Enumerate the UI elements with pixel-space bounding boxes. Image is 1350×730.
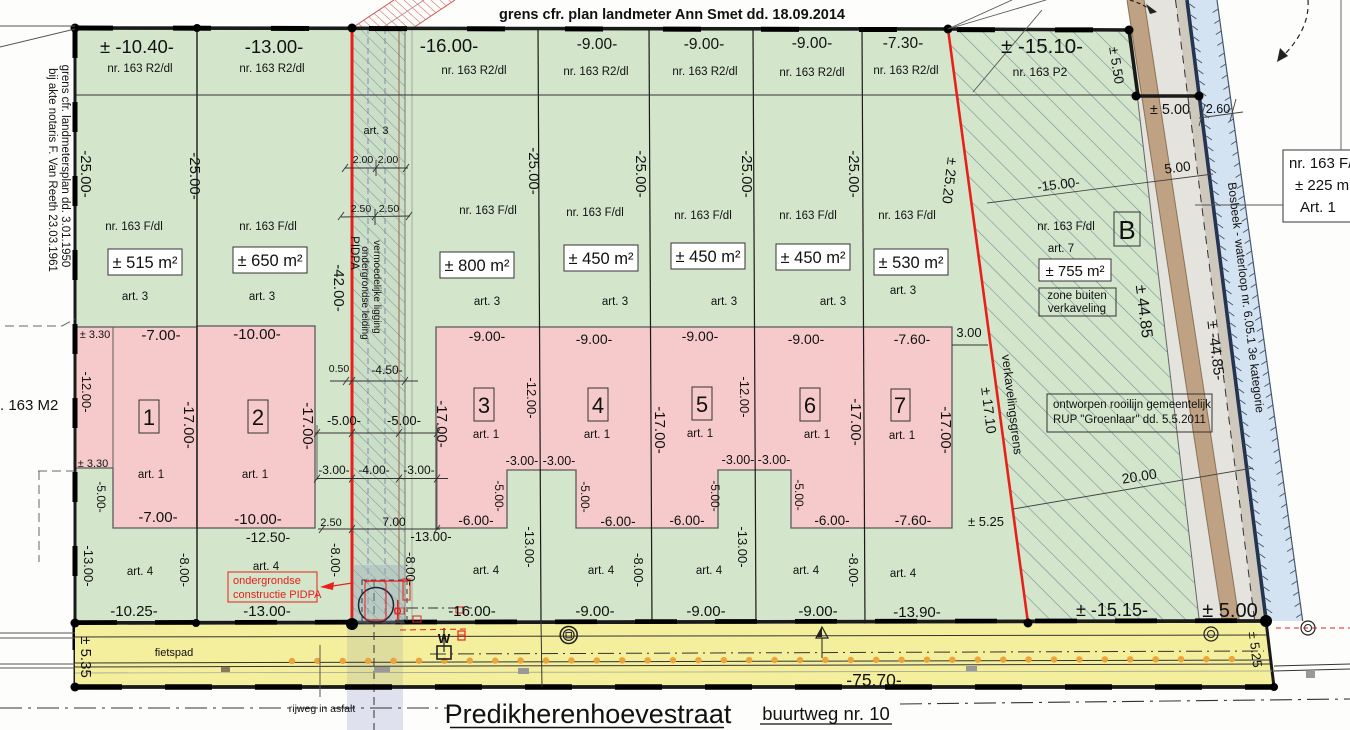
svg-text:6: 6 — [804, 393, 816, 418]
svg-text:-9.00-: -9.00- — [792, 35, 833, 52]
svg-text:. 163 M2: . 163 M2 — [0, 397, 58, 414]
svg-text:ontworpen rooilijn gemeentelij: ontworpen rooilijn gemeentelijk — [1053, 399, 1211, 411]
svg-text:± 530 m²: ± 530 m² — [879, 254, 944, 272]
svg-text:± 225 m: ± 225 m — [1295, 177, 1349, 194]
svg-text:± 515 m²: ± 515 m² — [113, 254, 178, 272]
svg-text:nr. 163 F/dl: nr. 163 F/dl — [566, 207, 624, 219]
svg-text:-8.00-: -8.00- — [631, 553, 646, 587]
svg-text:buurtweg nr. 10: buurtweg nr. 10 — [762, 703, 890, 724]
svg-text:-17.00-: -17.00- — [433, 400, 450, 448]
svg-text:7: 7 — [894, 393, 906, 418]
svg-text:art. 4: art. 4 — [127, 566, 154, 578]
svg-text:nr. 163 F/dl: nr. 163 F/dl — [459, 205, 517, 217]
svg-text:nr. 163 F/dl: nr. 163 F/dl — [779, 210, 837, 222]
svg-text:nr. 163 F/dl: nr. 163 F/dl — [674, 210, 732, 222]
svg-text:± 5.25: ± 5.25 — [968, 514, 1004, 529]
svg-text:-17.00-: -17.00- — [651, 406, 668, 454]
svg-text:-5.00-: -5.00- — [492, 480, 506, 511]
svg-text:5.00: 5.00 — [1163, 158, 1191, 176]
svg-text:± 650 m²: ± 650 m² — [238, 252, 303, 270]
svg-text:nr. 163 R2/dl: nr. 163 R2/dl — [873, 65, 938, 77]
svg-text:-13.00-: -13.00- — [410, 529, 451, 544]
svg-text:art. 4: art. 4 — [890, 568, 917, 580]
svg-text:-25.00-: -25.00- — [738, 150, 755, 198]
svg-text:± 450 m²: ± 450 m² — [781, 249, 846, 267]
svg-text:ondergrondse leiding: ondergrondse leiding — [359, 246, 370, 339]
svg-text:-13.90-: -13.90- — [893, 604, 941, 621]
svg-text:-8.00-: -8.00- — [403, 552, 418, 586]
svg-text:art. 3: art. 3 — [602, 296, 628, 308]
svg-text:-5.00-: -5.00- — [708, 480, 722, 511]
svg-text:RUP "Groenlaar" dd. 5.5.2011: RUP "Groenlaar" dd. 5.5.2011 — [1053, 414, 1206, 426]
svg-text:2.50: 2.50 — [379, 203, 400, 215]
svg-text:art. 3: art. 3 — [363, 125, 388, 137]
svg-text:-7.00-: -7.00- — [141, 327, 180, 344]
svg-text:art. 3: art. 3 — [820, 296, 846, 308]
svg-text:-42.00-: -42.00- — [330, 264, 347, 312]
svg-text:-17.00-: -17.00- — [299, 402, 316, 450]
svg-text:± -15.10-: ± -15.10- — [1001, 35, 1083, 58]
svg-text:nr. 163 F/dl: nr. 163 F/dl — [878, 210, 936, 222]
svg-text:-4.00-: -4.00- — [358, 463, 389, 477]
svg-text:± 5.35: ± 5.35 — [77, 636, 94, 678]
svg-text:-9.00-: -9.00- — [798, 603, 837, 620]
svg-text:-10.00-: -10.00- — [233, 326, 281, 343]
svg-text:-13.00-: -13.00- — [81, 545, 96, 586]
svg-text:-6.00-: -6.00- — [458, 513, 493, 528]
svg-text:nr. 163 P2: nr. 163 P2 — [1013, 65, 1068, 79]
svg-text:± 755 m²: ± 755 m² — [1045, 263, 1104, 280]
svg-text:3.00: 3.00 — [956, 325, 981, 340]
svg-text:-5.00-: -5.00- — [792, 479, 806, 510]
svg-text:2.00: 2.00 — [378, 154, 399, 166]
svg-text:-13.00-: -13.00- — [243, 603, 291, 620]
svg-text:2: 2 — [252, 405, 264, 430]
svg-text:-12.50-: -12.50- — [246, 529, 291, 545]
svg-text:± 5.00: ± 5.00 — [1150, 102, 1190, 118]
svg-text:art. 1: art. 1 — [804, 429, 830, 441]
svg-text:bij akte notaris F. Van Reeth: bij akte notaris F. Van Reeth 23.03.1961 — [46, 68, 58, 272]
svg-text:1: 1 — [143, 405, 155, 430]
svg-text:-9.00-: -9.00- — [682, 328, 719, 344]
svg-text:art. 4: art. 4 — [793, 565, 820, 577]
svg-text:± 800 m²: ± 800 m² — [445, 257, 510, 275]
svg-text:5: 5 — [696, 392, 708, 417]
svg-text:rijweg in asfalt: rijweg in asfalt — [289, 703, 356, 715]
svg-text:grens cfr. plan landmeter Ann: grens cfr. plan landmeter Ann Smet dd. 1… — [499, 7, 845, 23]
svg-text:Predikherenhoevestraat: Predikherenhoevestraat — [445, 699, 732, 729]
svg-text:verkaveling: verkaveling — [1048, 303, 1106, 315]
svg-text:-3.00-: -3.00- — [318, 463, 349, 477]
svg-text:nr. 163 R2/dl: nr. 163 R2/dl — [239, 63, 304, 75]
svg-text:art. 3: art. 3 — [474, 296, 500, 308]
svg-text:-9.00-: -9.00- — [788, 331, 825, 347]
svg-text:-17.00-: -17.00- — [937, 406, 954, 454]
svg-text:-4.50-: -4.50- — [371, 363, 402, 377]
svg-text:-16.00-: -16.00- — [420, 35, 479, 56]
svg-text:art. 1: art. 1 — [687, 428, 713, 440]
svg-text:art. 7: art. 7 — [1048, 243, 1074, 255]
svg-text:2.00: 2.00 — [353, 154, 374, 166]
svg-text:-9.00-: -9.00- — [684, 36, 725, 53]
svg-text:PIDPA: PIDPA — [348, 236, 360, 270]
svg-text:-7.30-: -7.30- — [883, 35, 924, 52]
svg-text:-17.00-: -17.00- — [180, 401, 197, 449]
svg-text:-13.00-: -13.00- — [735, 526, 750, 567]
svg-text:art. 1: art. 1 — [473, 429, 499, 441]
svg-text:-3.00-: -3.00- — [722, 453, 755, 467]
svg-text:zone buiten: zone buiten — [1047, 290, 1106, 302]
svg-text:-13.00-: -13.00- — [522, 526, 537, 567]
svg-text:-12.00-: -12.00- — [524, 377, 539, 418]
svg-text:art. 1: art. 1 — [889, 430, 915, 442]
svg-text:-12.00-: -12.00- — [79, 371, 94, 412]
svg-text:-9.00-: -9.00- — [686, 603, 725, 620]
svg-text:nr. 163 F/dl: nr. 163 F/dl — [239, 221, 297, 233]
svg-text:-5.00-: -5.00- — [578, 481, 592, 512]
svg-text:art. 4: art. 4 — [696, 565, 723, 577]
svg-text:vermoedelijke ligging: vermoedelijke ligging — [371, 240, 382, 333]
svg-text:-17.00-: -17.00- — [847, 398, 864, 446]
svg-text:-3.00-: -3.00- — [506, 454, 539, 468]
svg-text:Art. 1: Art. 1 — [1300, 199, 1336, 216]
svg-text:nr. 163 R2/dl: nr. 163 R2/dl — [563, 66, 628, 78]
svg-text:-8.00-: -8.00- — [846, 553, 861, 587]
svg-text:-9.00-: -9.00- — [576, 331, 613, 347]
svg-text:-5.00-: -5.00- — [387, 413, 421, 428]
svg-text:-6.00-: -6.00- — [600, 514, 635, 529]
svg-text:art. 3: art. 3 — [249, 291, 275, 303]
svg-text:art. 3: art. 3 — [711, 296, 737, 308]
svg-text:-12.00-: -12.00- — [737, 376, 752, 417]
svg-text:-25.00-: -25.00- — [77, 150, 94, 198]
svg-text:-25.00-: -25.00- — [845, 150, 862, 198]
svg-text:art. 3: art. 3 — [890, 285, 916, 297]
svg-text:constructie PIDPA: constructie PIDPA — [233, 589, 322, 601]
svg-text:art. 3: art. 3 — [122, 291, 148, 303]
svg-text:art. 1: art. 1 — [584, 429, 610, 441]
svg-text:nr. 163 R2/dl: nr. 163 R2/dl — [779, 67, 844, 79]
svg-text:-7.60-: -7.60- — [894, 331, 931, 347]
svg-text:nr. 163 F/d: nr. 163 F/d — [1289, 155, 1350, 172]
svg-text:-8.00-: -8.00- — [328, 543, 343, 577]
svg-text:± 5.00: ± 5.00 — [1202, 600, 1257, 622]
svg-text:± 450 m²: ± 450 m² — [676, 248, 741, 266]
svg-text:-75.70-: -75.70- — [846, 670, 902, 690]
svg-text:nr. 163 R2/dl: nr. 163 R2/dl — [107, 63, 172, 75]
svg-text:art. 4: art. 4 — [473, 565, 500, 577]
svg-text:-6.00-: -6.00- — [669, 513, 704, 528]
svg-text:nr. 163 F/dl: nr. 163 F/dl — [105, 221, 163, 233]
svg-text:B: B — [1118, 215, 1135, 245]
svg-text:art. 1: art. 1 — [242, 469, 268, 481]
svg-text:-9.00-: -9.00- — [577, 36, 618, 53]
svg-text:± -10.40-: ± -10.40- — [100, 36, 174, 57]
svg-text:fietspad: fietspad — [155, 647, 194, 659]
svg-text:-6.00-: -6.00- — [814, 513, 849, 528]
svg-text:-7.60-: -7.60- — [895, 512, 932, 528]
svg-text:4: 4 — [592, 393, 604, 418]
svg-text:nr. 163 R2/dl: nr. 163 R2/dl — [672, 66, 737, 78]
svg-text:-25.00-: -25.00- — [632, 150, 649, 198]
svg-text:-9.00-: -9.00- — [469, 328, 506, 344]
svg-text:-9.00-: -9.00- — [575, 603, 614, 620]
svg-text:-13.00-: -13.00- — [245, 36, 304, 57]
svg-text:nr. 163 F/dl: nr. 163 F/dl — [1037, 221, 1095, 233]
svg-text:-7.00-: -7.00- — [138, 509, 177, 526]
svg-text:grens cfr. landmetersplan dd.: grens cfr. landmetersplan dd. 3.01.1950 — [59, 65, 71, 268]
svg-text:art. 4: art. 4 — [588, 565, 615, 577]
svg-text:± 3.30: ± 3.30 — [80, 329, 111, 341]
svg-text:-8.00-: -8.00- — [177, 553, 192, 587]
svg-text:0.50: 0.50 — [329, 363, 350, 375]
svg-text:3: 3 — [478, 393, 490, 418]
svg-text:± 450 m²: ± 450 m² — [569, 250, 634, 268]
svg-text:-25.00-: -25.00- — [525, 147, 542, 195]
svg-text:-5.00-: -5.00- — [94, 481, 108, 512]
svg-text:± -15.15-: ± -15.15- — [1076, 600, 1148, 620]
svg-text:art. 1: art. 1 — [138, 469, 164, 481]
svg-text:ondergrondse: ondergrondse — [233, 575, 301, 587]
svg-text:-16.00-: -16.00- — [448, 603, 496, 620]
svg-text:7.00: 7.00 — [382, 515, 406, 529]
svg-text:2.50: 2.50 — [351, 203, 372, 215]
svg-text:-3.00-: -3.00- — [403, 463, 434, 477]
svg-text:-3.00-: -3.00- — [758, 453, 791, 467]
svg-text:-5.00-: -5.00- — [327, 413, 361, 428]
svg-text:-3.00-: -3.00- — [543, 454, 576, 468]
svg-text:± 3.30: ± 3.30 — [78, 458, 109, 470]
svg-text:nr. 163 R2/dl: nr. 163 R2/dl — [441, 65, 506, 77]
svg-text:-10.25-: -10.25- — [110, 603, 158, 620]
svg-text:-25.00-: -25.00- — [186, 152, 203, 200]
svg-text:art. 4: art. 4 — [253, 561, 280, 573]
svg-text:-10.00-: -10.00- — [234, 511, 282, 528]
